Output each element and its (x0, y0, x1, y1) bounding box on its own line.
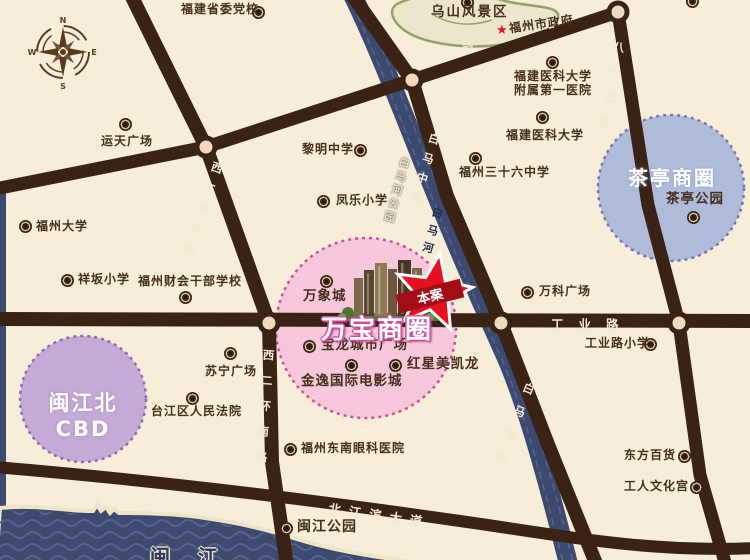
poi-dot-fengle (317, 195, 330, 208)
poi-label-caikuai: 福州财会干部学校 (138, 275, 242, 289)
poi-label-gongyelu-school: 工业路小学 (585, 337, 650, 351)
poi-label-minjiang-park: 闽江公园 (297, 519, 357, 535)
map-canvas: N E S W (0, 0, 750, 560)
compass-s: S (60, 82, 66, 91)
poi-dot-xiangban (61, 274, 74, 287)
poi-label-dangxiao: 福建省委党校 (181, 3, 259, 17)
poi-label-chating-park: 茶亭公园 (666, 192, 724, 208)
poi-label-yike-univ: 福建医科大学 (506, 129, 584, 143)
poi-label-liming: 黎明中学 (302, 143, 354, 157)
river-label-minjiang: 闽江 (150, 541, 246, 560)
poi-dot-chating-park (687, 211, 700, 224)
poi-label-hongxing: 红星美凯龙 (407, 357, 480, 373)
poi-dot-yuntian (119, 118, 132, 131)
poi-dot-wanke (521, 286, 534, 299)
poi-label-wenhuagong: 工人文化宫 (624, 480, 689, 494)
poi-dot-hongxing (389, 359, 402, 372)
poi-label-no36: 福州三十六中学 (459, 166, 550, 180)
poi-dot-yike-univ (536, 111, 549, 124)
poi-dot-minjiang-park (280, 522, 293, 535)
poi-label-yanke: 福州东南眼科医院 (301, 442, 405, 456)
poi-label-fuzhou-univ: 福州大学 (36, 220, 88, 234)
area-label-wushan-scenic: 乌山风景区 (431, 5, 509, 21)
compass-n: N (60, 16, 67, 25)
poi-dot-wenhuagong (690, 481, 703, 494)
poi-dot-suning (224, 347, 237, 360)
poi-dot-dongfang (678, 450, 691, 463)
poi-label-wanxiangcheng: 万象城 (303, 289, 347, 305)
compass-e: E (91, 48, 96, 57)
road-bayiqi (618, 12, 726, 560)
poi-label-yuntian: 运天广场 (101, 135, 153, 149)
poi-dot-caikuai (179, 291, 192, 304)
poi-dot-jinyi (345, 359, 358, 372)
road-northwest (131, 0, 206, 147)
poi-dot-yanke (284, 443, 297, 456)
poi-label-fengle: 凤乐小学 (336, 194, 388, 208)
compass-icon: N E S W (28, 16, 97, 91)
poi-label-yike-fuyi-2: 附属第一医院 (514, 84, 592, 98)
government-star-icon: ★ (496, 24, 508, 37)
poi-dot-wanxiangcheng (320, 275, 333, 288)
poi-dot-fuzhou-univ (19, 220, 32, 233)
compass-w: W (28, 48, 37, 57)
poi-label-dongfang: 东方百货 (624, 449, 676, 463)
poi-label-wanke: 万科广场 (539, 285, 591, 299)
poi-label-yike-fuyi-1: 福建医科大学 (514, 70, 592, 84)
wanbao-circle-title: 万宝商圈 (297, 309, 457, 346)
chating-circle-title: 茶亭商圈 (612, 162, 732, 191)
left-edge-water (0, 186, 6, 560)
poi-dot-no36 (469, 152, 482, 165)
poi-label-jinyi: 金逸国际电影城 (301, 374, 403, 390)
poi-label-fayuan: 台江区人民法院 (151, 405, 242, 419)
poi-dot-yike-fuyi (546, 56, 559, 69)
poi-dot-liming (354, 144, 367, 157)
minjiang-cbd-title: 闽江北CBD (24, 387, 142, 441)
road-wushan-west (0, 12, 618, 189)
poi-label-xiangban: 祥坂小学 (78, 273, 130, 287)
poi-label-suning: 苏宁广场 (205, 365, 257, 379)
road-label-gongye: 工业路 (551, 314, 634, 333)
